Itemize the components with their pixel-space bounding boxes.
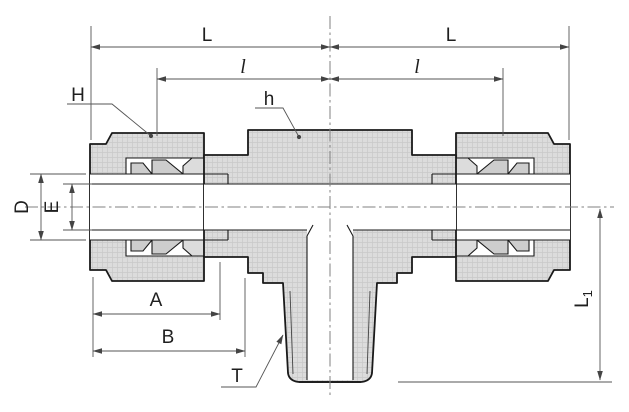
dim-label-L-right: L: [446, 25, 457, 46]
dim-label-L1-subscript: 1: [580, 290, 595, 297]
leader-H: [67, 104, 151, 136]
dim-label-L1: L1: [572, 290, 595, 308]
dim-label-D: D: [12, 200, 33, 214]
dim-label-l-left: l: [240, 56, 246, 78]
dim-label-L-left: L: [202, 25, 213, 46]
drawing-canvas: L L l l H h D E A B T L1: [0, 0, 629, 412]
dim-label-A: A: [150, 290, 163, 311]
dim-label-l-right: l: [414, 56, 420, 78]
dim-label-B: B: [162, 327, 175, 348]
dim-label-E: E: [42, 201, 63, 214]
fitting-cross-section-drawing: L L l l H h D E A B T L1: [0, 0, 629, 412]
dim-label-L1-main: L: [572, 297, 593, 308]
dim-label-T: T: [231, 366, 243, 387]
dim-label-H: H: [71, 85, 85, 106]
dim-label-h: h: [264, 89, 275, 110]
